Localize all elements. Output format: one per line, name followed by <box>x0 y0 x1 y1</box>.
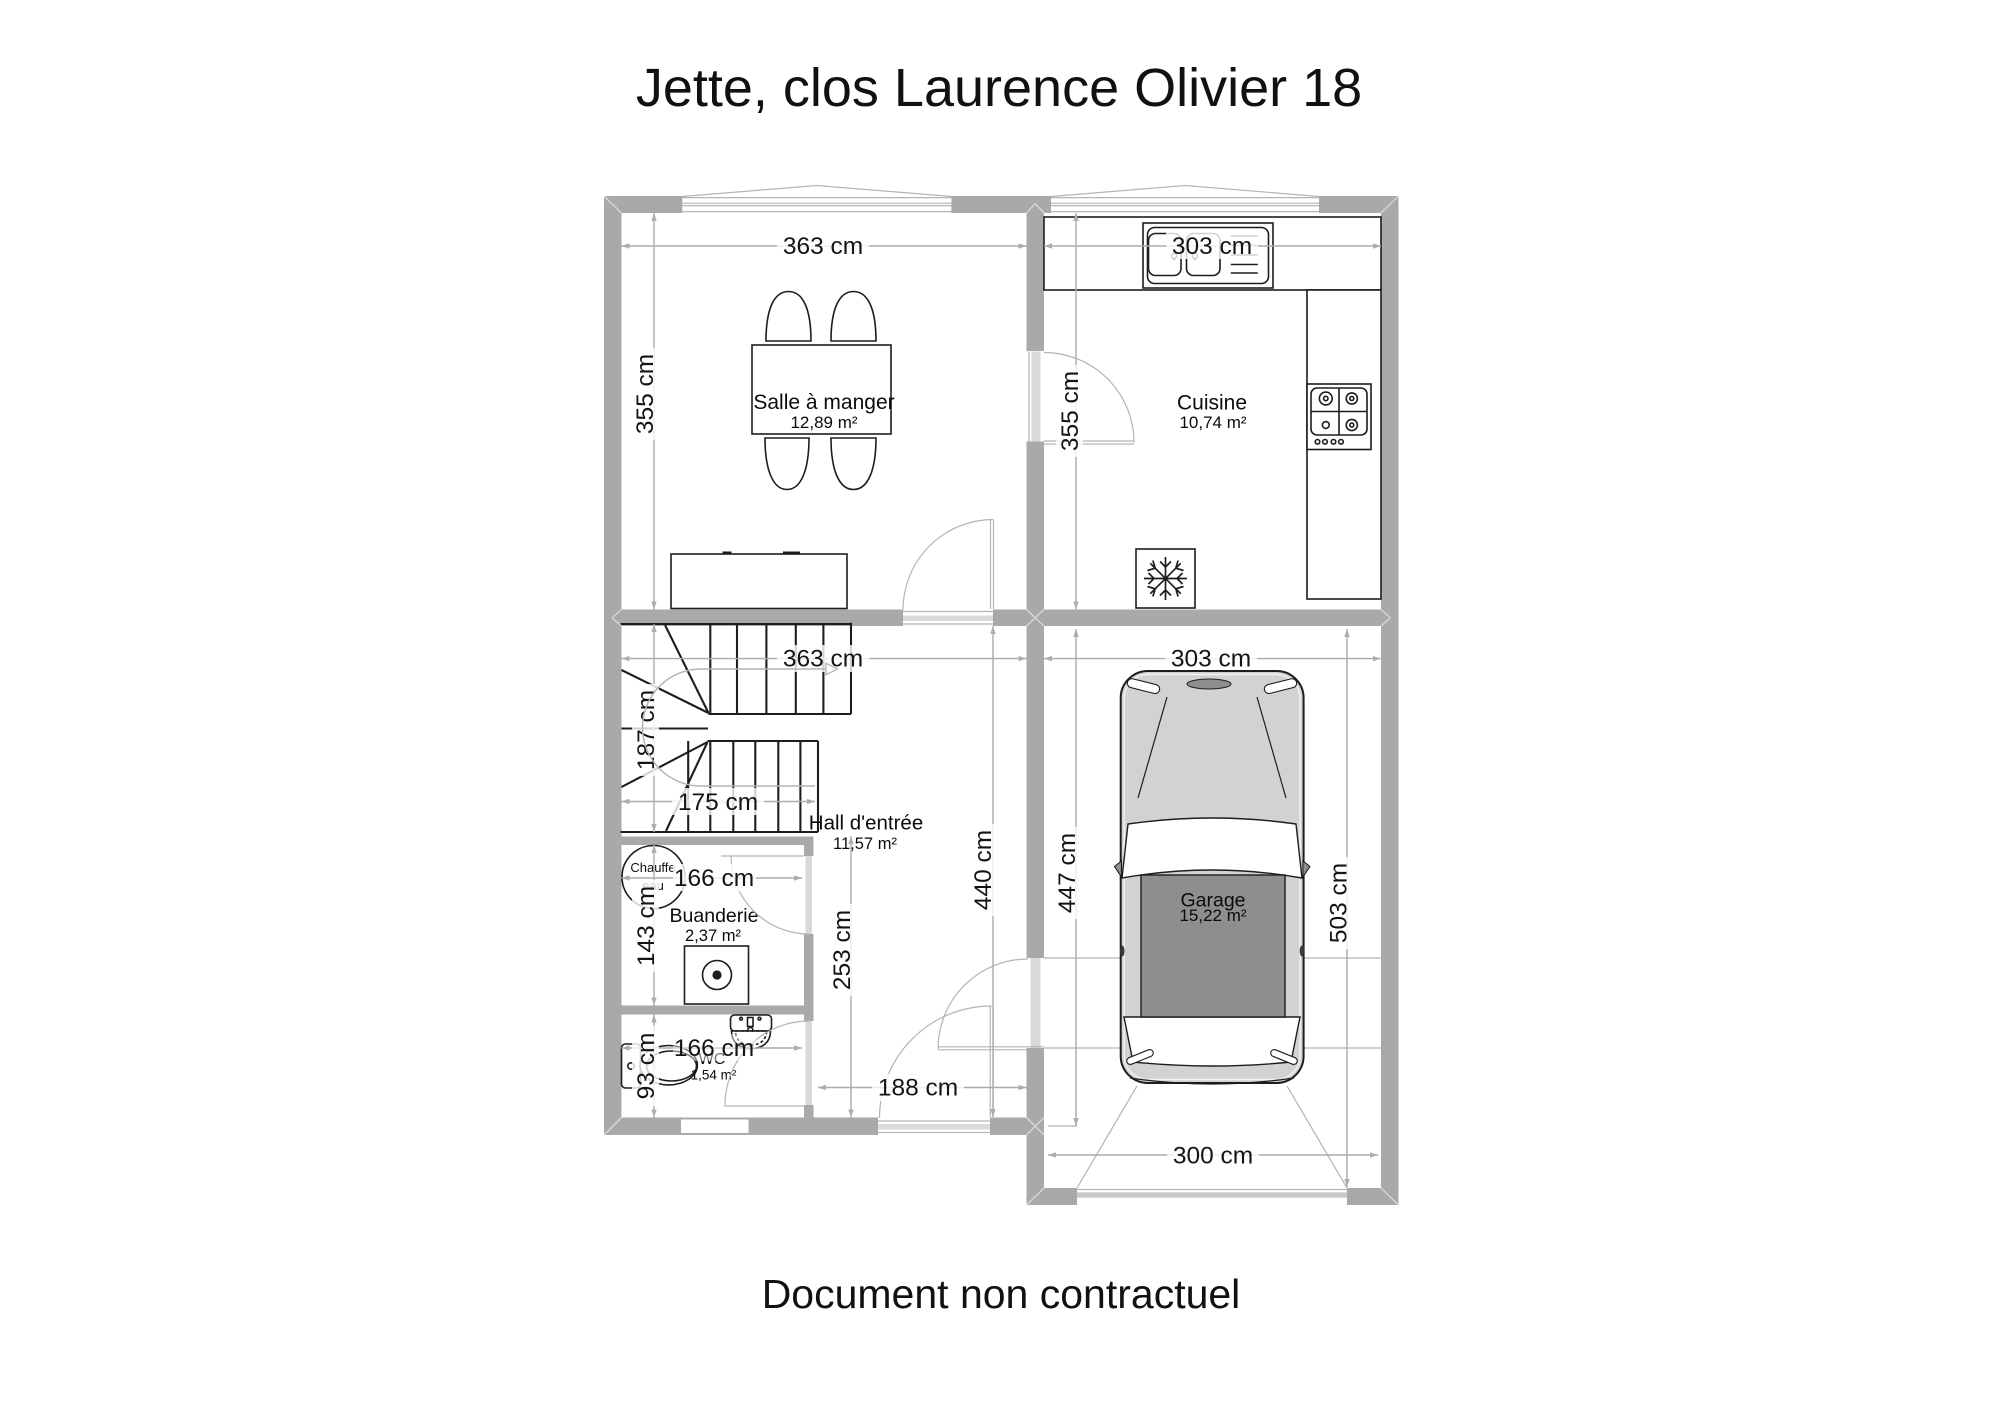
svg-text:303 cm: 303 cm <box>1172 233 1252 260</box>
svg-text:Hall d'entrée: Hall d'entrée <box>809 812 923 835</box>
svg-text:166 cm: 166 cm <box>674 1035 754 1062</box>
svg-text:440 cm: 440 cm <box>970 830 997 910</box>
svg-text:355 cm: 355 cm <box>632 354 659 434</box>
svg-text:Document non contractuel: Document non contractuel <box>762 1271 1241 1317</box>
svg-text:447 cm: 447 cm <box>1054 833 1081 913</box>
svg-text:253 cm: 253 cm <box>829 910 856 990</box>
svg-text:2,37 m²: 2,37 m² <box>685 927 741 945</box>
svg-text:166 cm: 166 cm <box>674 865 754 892</box>
svg-text:10,74 m²: 10,74 m² <box>1179 413 1246 432</box>
svg-text:188 cm: 188 cm <box>878 1075 958 1102</box>
svg-text:Jette, clos Laurence Olivier 1: Jette, clos Laurence Olivier 18 <box>636 58 1362 118</box>
svg-text:Cuisine: Cuisine <box>1177 392 1247 415</box>
svg-text:187 cm: 187 cm <box>633 690 660 770</box>
svg-text:11,57 m²: 11,57 m² <box>833 835 897 853</box>
svg-text:363 cm: 363 cm <box>783 233 863 260</box>
svg-text:143 cm: 143 cm <box>633 886 660 966</box>
svg-text:Buanderie: Buanderie <box>670 905 759 927</box>
svg-text:175 cm: 175 cm <box>678 789 758 816</box>
svg-text:Chauffe: Chauffe <box>630 860 675 875</box>
svg-text:Salle à manger: Salle à manger <box>753 391 894 414</box>
svg-text:355 cm: 355 cm <box>1057 371 1084 451</box>
svg-text:303 cm: 303 cm <box>1171 646 1251 673</box>
svg-text:93 cm: 93 cm <box>633 1033 660 1100</box>
svg-text:15,22 m²: 15,22 m² <box>1179 906 1246 925</box>
svg-text:503 cm: 503 cm <box>1326 863 1353 943</box>
svg-text:300 cm: 300 cm <box>1173 1143 1253 1170</box>
svg-text:12,89 m²: 12,89 m² <box>790 413 857 432</box>
